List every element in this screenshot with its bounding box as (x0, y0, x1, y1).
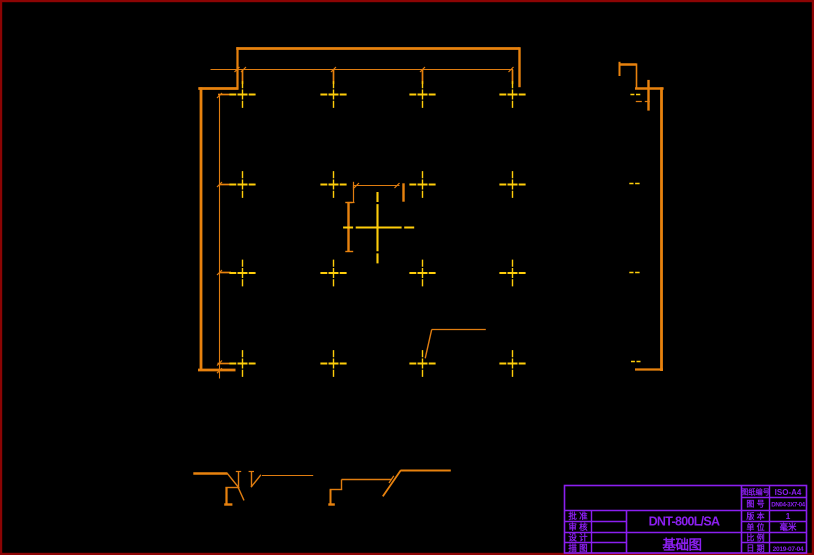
svg-text:描 图: 描 图 (568, 543, 587, 553)
svg-text:DN04-3X7-04: DN04-3X7-04 (771, 501, 805, 508)
svg-text:1: 1 (786, 511, 791, 521)
svg-text:比 例: 比 例 (746, 533, 764, 543)
svg-text:ISO-A4: ISO-A4 (775, 488, 802, 497)
svg-text:单 位: 单 位 (746, 522, 764, 532)
svg-text:图纸编号: 图纸编号 (741, 488, 770, 497)
svg-text:批 准: 批 准 (568, 511, 588, 521)
svg-text:日 期: 日 期 (746, 543, 764, 553)
svg-text:2019-07-04: 2019-07-04 (773, 546, 804, 553)
svg-text:DNT-800L/SA: DNT-800L/SA (649, 515, 720, 529)
svg-text:图 号: 图 号 (746, 500, 764, 509)
svg-text:审 核: 审 核 (568, 522, 588, 532)
svg-text:毫米: 毫米 (779, 522, 797, 532)
svg-text:基础图: 基础图 (662, 537, 701, 553)
svg-text:设 计: 设 计 (568, 533, 588, 543)
svg-text:版 本: 版 本 (745, 511, 764, 521)
